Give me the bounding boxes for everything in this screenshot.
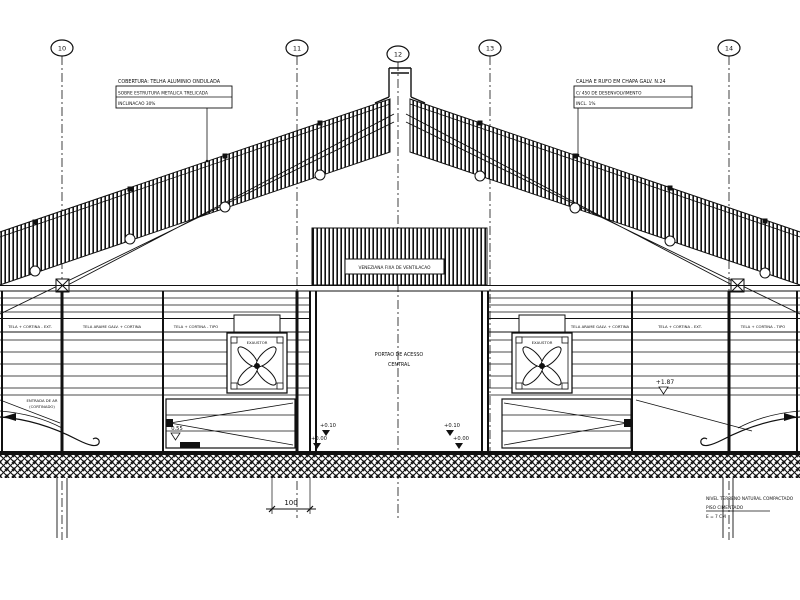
columns (2, 291, 797, 452)
band-label-2: TELA ARAME GALV. + CORTINA (82, 324, 142, 329)
gate-left (166, 399, 295, 448)
fan-label-right: EXAUSTOR (532, 340, 553, 345)
note-top-right-line1: CALHA E RUFO EM CHAPA GALV. N.24 (576, 79, 666, 85)
note-top-left: COBERTURA: TELHA ALUMINIO ONDULADA SOBRE… (116, 79, 232, 162)
gate-right (502, 399, 631, 448)
fan-label-left: EXAUSTOR (247, 340, 268, 345)
note-top-right-line2: C/ 450 DE DESENVOLVIMENTO (576, 91, 642, 97)
level-triangle-icon (313, 443, 321, 449)
door-label-line2: CENTRAL (388, 362, 410, 368)
curtain-band-labels: TELA + CORTINA - EXT. TELA ARAME GALV. +… (7, 324, 785, 329)
gable-vent-panel (312, 228, 487, 285)
threshold-block (180, 442, 200, 448)
air-inlet-right (636, 400, 800, 446)
grid-bubble-3: 12 (394, 51, 402, 59)
note-bottom-right: NIVEL TERRENO NATURAL COMPACTADO PISO CI… (706, 496, 794, 520)
note-top-left-line3: INCLINACAO 30% (118, 101, 155, 107)
note-top-left-line1: COBERTURA: TELHA ALUMINIO ONDULADA (118, 79, 221, 85)
level-right-upper: +0.10 (444, 423, 460, 429)
footings (57, 478, 733, 538)
ramp-label-line2: (CORTINADO) (29, 404, 55, 409)
drawing-sheet: VENEZIANA FIXA DE VENTILACAO TELA + CORT… (0, 0, 800, 600)
wall-siding-lines (0, 298, 800, 395)
eave-beam (0, 286, 800, 292)
airflow-arrow-right-icon (784, 413, 797, 421)
note-top-right-line3: INCL. 1% (576, 101, 595, 107)
note-top-left-line2: SOBRE ESTRUTURA METALICA TRELICADA (118, 91, 208, 97)
ramp-label-line1: ENTRADA DE AR (26, 398, 57, 403)
grid-bubble-4: 13 (486, 45, 494, 53)
level-center-upper: +0.10 (320, 423, 336, 429)
door-label-line1: PORTAO DE ACESSO (375, 352, 424, 358)
door-label: PORTAO DE ACESSO CENTRAL (375, 352, 424, 368)
dimension-100-value: 100 (284, 499, 297, 507)
grid-bubble-1: 10 (58, 45, 66, 53)
exhaust-fan-left: EXAUSTOR (227, 315, 287, 393)
section-drawing: VENEZIANA FIXA DE VENTILACAO TELA + CORT… (0, 0, 800, 600)
level-left: 0.55 (171, 426, 183, 432)
level-eave-right: +1.87 (656, 379, 675, 386)
note-bottom-right-line3: E = 7 CM (706, 514, 726, 520)
note-bottom-right-line1: NIVEL TERRENO NATURAL COMPACTADO (706, 496, 794, 502)
note-bottom-right-line2: PISO CIMENTADO (706, 505, 744, 511)
level-triangle-icon (659, 387, 668, 394)
level-right-lower: +0.00 (453, 436, 469, 442)
airflow-arrow-left-icon (3, 413, 16, 421)
ridge-cap (375, 68, 425, 103)
grid-bubbles: 10 11 12 13 14 (51, 40, 740, 62)
band-label-4: TELA ARAME GALV. + CORTINA (570, 324, 630, 329)
band-label-1: TELA + CORTINA - EXT. (7, 324, 52, 329)
band-label-3: TELA + CORTINA - TIPO (173, 324, 219, 329)
level-center-lower: +0.00 (311, 436, 327, 442)
level-triangle-icon (455, 443, 463, 449)
grid-bubble-2: 11 (293, 45, 301, 53)
band-label-6: TELA + CORTINA - TIPO (740, 324, 786, 329)
roof-label-box: VENEZIANA FIXA DE VENTILACAO (345, 259, 444, 274)
dimension-100: 100 (266, 478, 316, 514)
exhaust-fan-right: EXAUSTOR (512, 315, 572, 393)
air-inlet-left: ENTRADA DE AR (CORTINADO) (0, 398, 99, 446)
note-top-right: CALHA E RUFO EM CHAPA GALV. N.24 C/ 450 … (574, 79, 692, 156)
roof-label: VENEZIANA FIXA DE VENTILACAO (359, 265, 432, 271)
ground-hatch (0, 455, 800, 478)
grid-bubble-5: 14 (725, 45, 733, 53)
band-label-5: TELA + CORTINA - EXT. (657, 324, 702, 329)
floor-slab (0, 451, 800, 455)
